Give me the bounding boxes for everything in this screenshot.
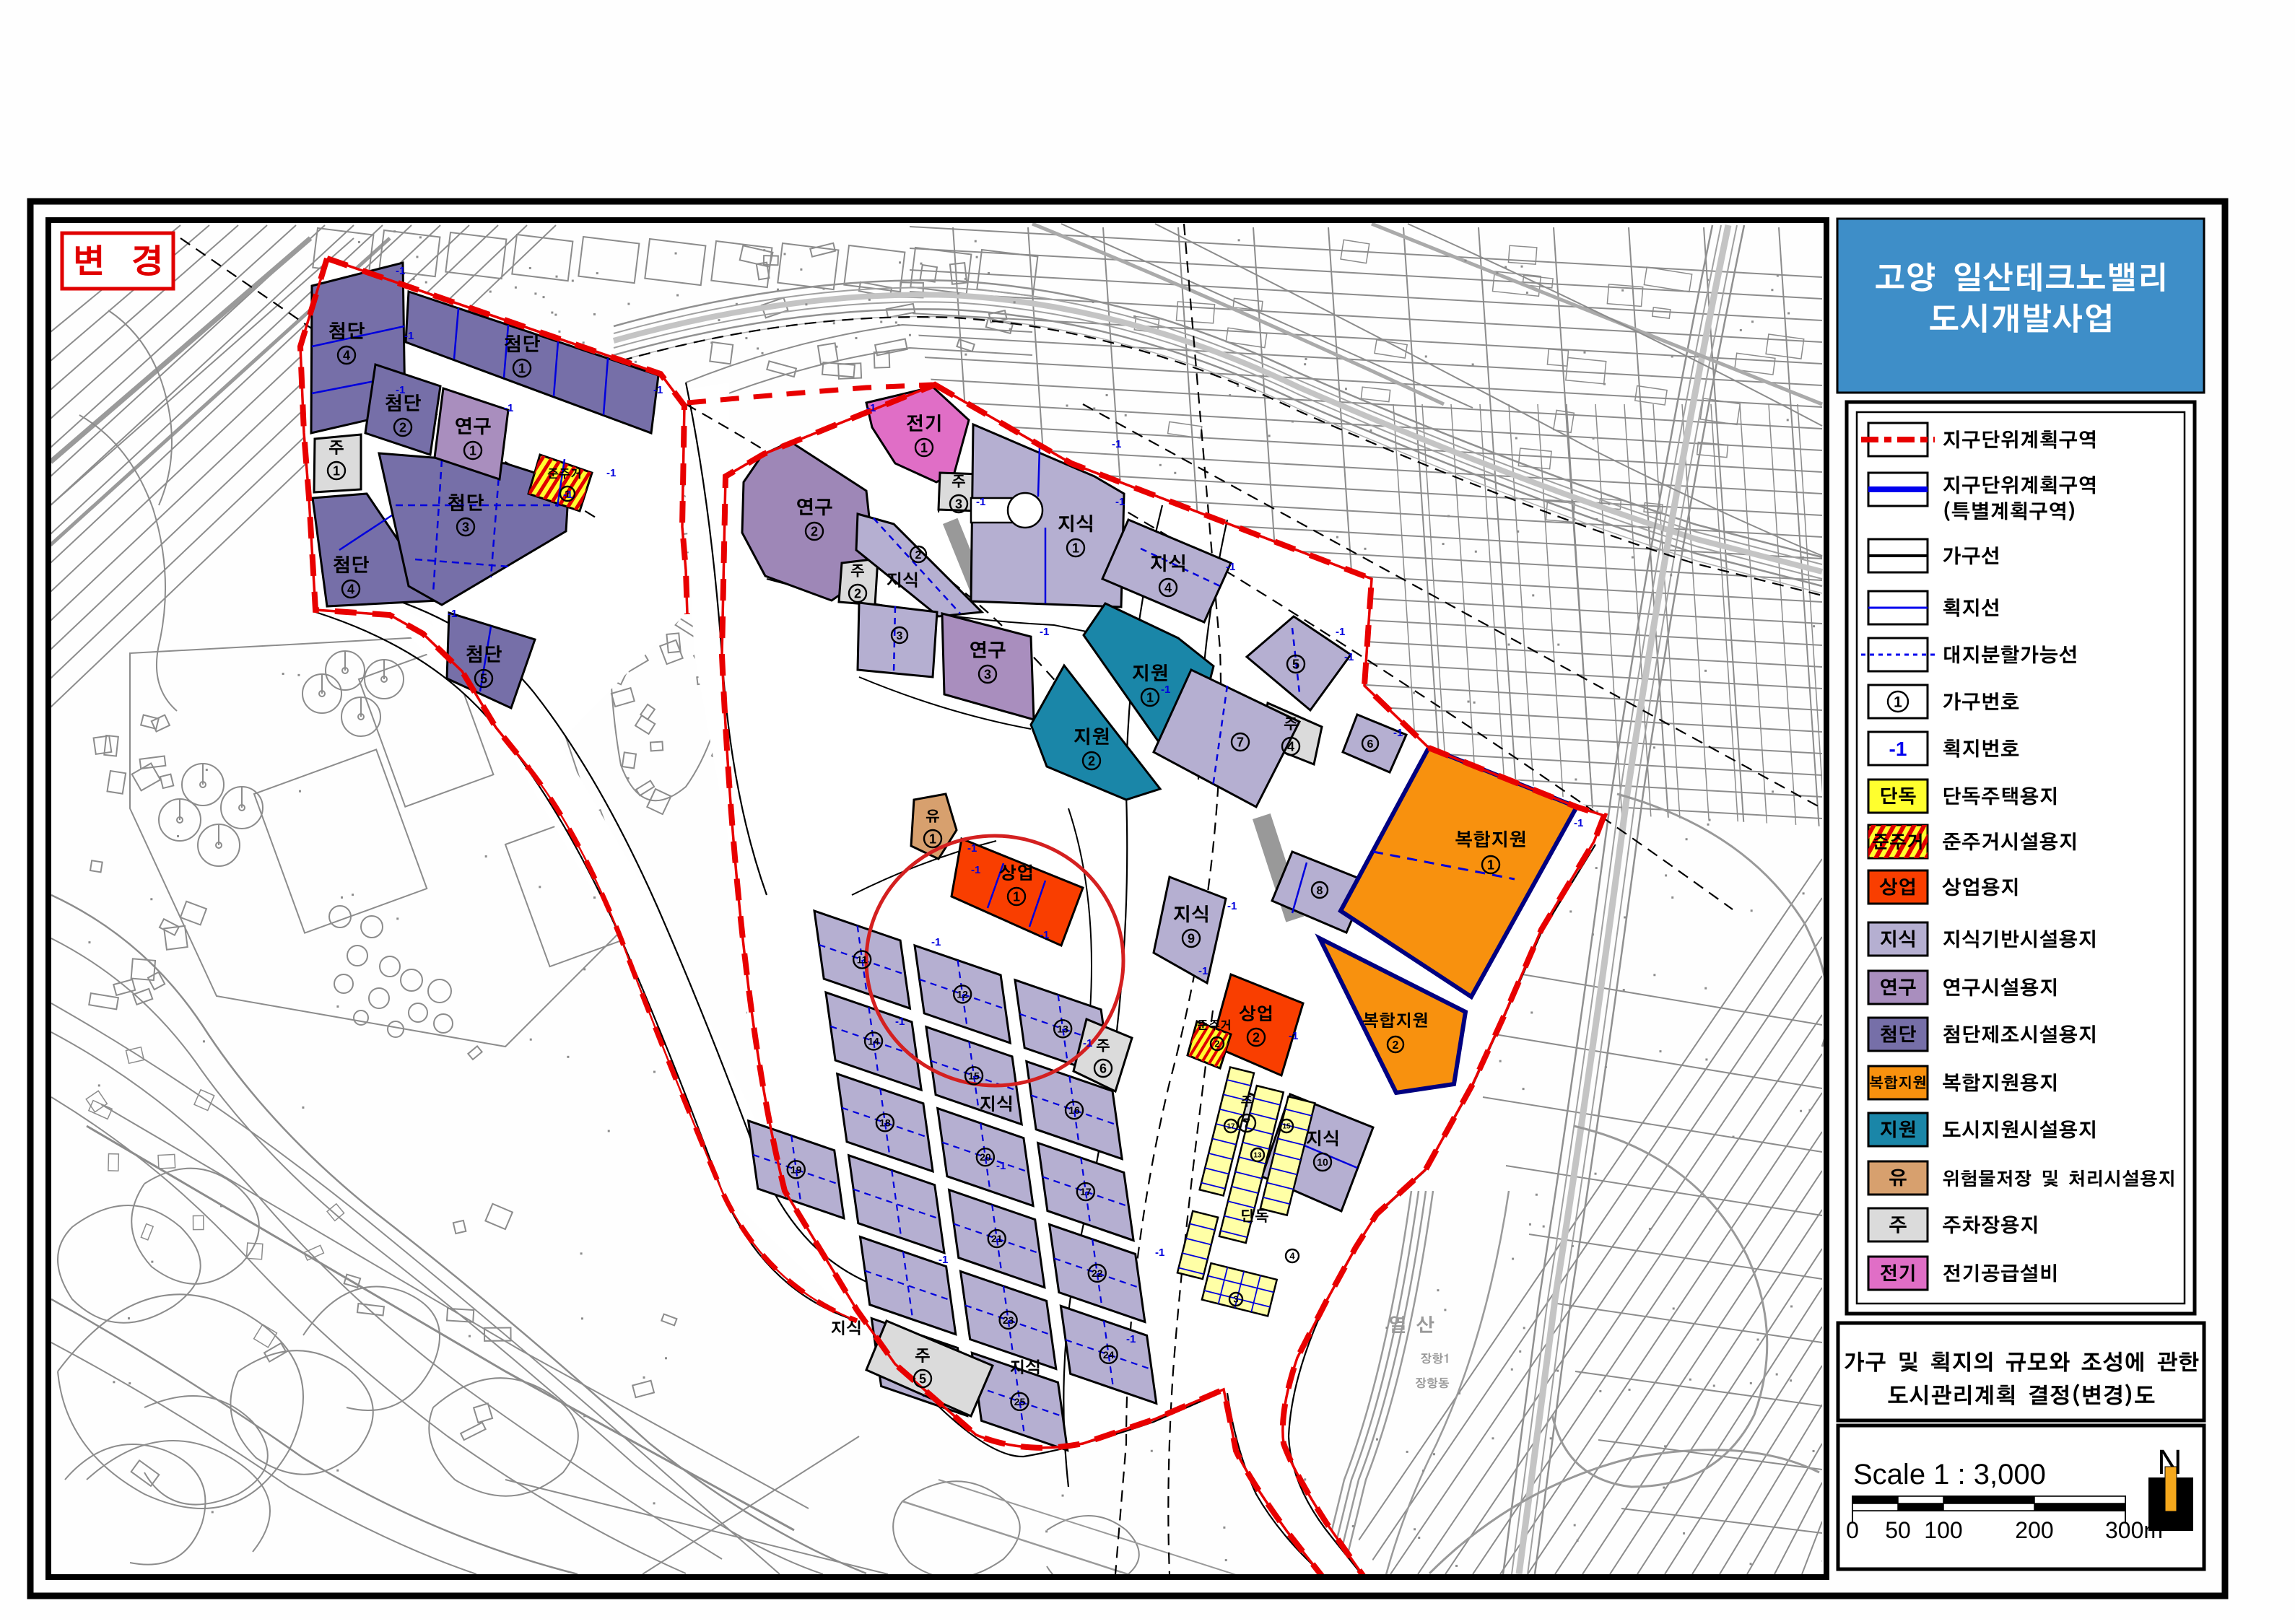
svg-text:Scale 1 : 3,000: Scale 1 : 3,000: [1853, 1459, 2046, 1490]
svg-text:22: 22: [1092, 1267, 1103, 1279]
svg-text:23: 23: [1003, 1314, 1014, 1326]
svg-text:4: 4: [1289, 1251, 1295, 1262]
svg-text:-1: -1: [504, 402, 513, 414]
svg-text:-1: -1: [1115, 496, 1125, 508]
svg-text:-1: -1: [895, 1016, 905, 1028]
svg-text:1: 1: [929, 831, 936, 846]
svg-text:20: 20: [980, 1151, 991, 1163]
svg-text:3: 3: [462, 520, 469, 534]
svg-text:-1: -1: [404, 330, 414, 342]
svg-text:8: 8: [1317, 885, 1323, 897]
svg-text:3: 3: [955, 497, 962, 511]
svg-text:21: 21: [991, 1233, 1003, 1244]
svg-text:1: 1: [518, 361, 526, 375]
svg-text:11: 11: [857, 954, 868, 966]
svg-text:3: 3: [984, 667, 991, 681]
svg-text:4: 4: [1287, 739, 1294, 754]
svg-text:-1: -1: [1112, 438, 1121, 450]
svg-text:2: 2: [1393, 1039, 1399, 1052]
svg-text:-1: -1: [1574, 817, 1583, 829]
svg-text:17: 17: [1080, 1186, 1092, 1197]
svg-text:6: 6: [1367, 738, 1374, 751]
svg-text:1: 1: [920, 440, 928, 455]
svg-text:2: 2: [1214, 1039, 1219, 1049]
svg-text:-1: -1: [448, 608, 457, 620]
svg-text:3: 3: [1233, 1294, 1238, 1305]
svg-text:1: 1: [333, 463, 340, 478]
svg-text:-1: -1: [396, 384, 405, 396]
svg-text:13: 13: [1057, 1023, 1068, 1034]
svg-text:1: 1: [1894, 694, 1902, 711]
svg-text:-1: -1: [1040, 626, 1049, 638]
svg-text:-1: -1: [1344, 651, 1354, 663]
svg-text:-1: -1: [971, 864, 980, 876]
svg-text:1: 1: [469, 443, 476, 458]
svg-text:18: 18: [879, 1117, 891, 1128]
svg-text:1: 1: [1487, 857, 1494, 872]
svg-text:-1: -1: [1083, 1037, 1092, 1049]
svg-text:-1: -1: [396, 265, 405, 277]
svg-text:-1: -1: [1161, 684, 1170, 696]
svg-text:-1: -1: [976, 496, 985, 508]
svg-text:24: 24: [1103, 1349, 1115, 1361]
svg-text:-1: -1: [1198, 965, 1208, 977]
svg-text:6: 6: [1099, 1061, 1107, 1075]
svg-text:7: 7: [1243, 1116, 1250, 1130]
svg-text:2: 2: [915, 549, 922, 562]
svg-text:-1: -1: [1040, 929, 1049, 941]
svg-text:-1: -1: [563, 489, 572, 501]
svg-text:4: 4: [343, 348, 350, 362]
svg-text:2: 2: [399, 420, 406, 435]
svg-text:25: 25: [1014, 1396, 1026, 1407]
svg-text:19: 19: [791, 1164, 802, 1175]
svg-text:17: 17: [1227, 1123, 1235, 1131]
svg-text:2: 2: [854, 586, 861, 601]
svg-text:1: 1: [1146, 690, 1154, 704]
svg-text:-1: -1: [653, 384, 663, 396]
svg-text:-1: -1: [606, 467, 616, 479]
svg-text:16: 16: [1068, 1104, 1080, 1116]
svg-text:3: 3: [897, 630, 903, 642]
svg-text:-1: -1: [866, 402, 876, 414]
svg-text:15: 15: [1282, 1123, 1291, 1131]
svg-text:12: 12: [957, 988, 968, 1000]
svg-text:5: 5: [480, 671, 487, 686]
svg-text:-1: -1: [1289, 1030, 1298, 1042]
svg-text:1: 1: [1013, 889, 1020, 904]
svg-text:14: 14: [868, 1035, 879, 1047]
svg-text:-1: -1: [1889, 738, 1907, 760]
svg-text:5: 5: [1292, 657, 1299, 671]
svg-text:4: 4: [347, 582, 354, 596]
svg-text:-1: -1: [1155, 1247, 1164, 1259]
svg-text:9: 9: [1188, 931, 1195, 946]
svg-text:-1: -1: [931, 936, 941, 948]
svg-text:100: 100: [1924, 1517, 1962, 1543]
svg-text:10: 10: [1317, 1156, 1328, 1168]
svg-text:-1: -1: [1227, 900, 1237, 912]
svg-text:5: 5: [919, 1371, 926, 1386]
svg-text:2: 2: [1088, 754, 1095, 768]
svg-text:-1: -1: [1393, 727, 1403, 739]
svg-text:4: 4: [1164, 580, 1172, 595]
svg-text:2: 2: [1253, 1030, 1260, 1044]
svg-text:15: 15: [968, 1070, 980, 1081]
svg-text:-1: -1: [1126, 1333, 1136, 1345]
svg-text:-1: -1: [1336, 626, 1345, 638]
svg-text:200: 200: [2015, 1517, 2053, 1543]
svg-text:50: 50: [1885, 1517, 1911, 1543]
svg-text:-1: -1: [1226, 561, 1235, 573]
svg-text:-1: -1: [996, 1160, 1006, 1172]
svg-text:13: 13: [1253, 1152, 1262, 1160]
svg-text:-1: -1: [939, 1254, 948, 1266]
svg-text:-1: -1: [967, 842, 977, 855]
svg-text:7: 7: [1237, 735, 1244, 749]
svg-text:1: 1: [1072, 541, 1079, 555]
svg-text:2: 2: [811, 524, 818, 538]
